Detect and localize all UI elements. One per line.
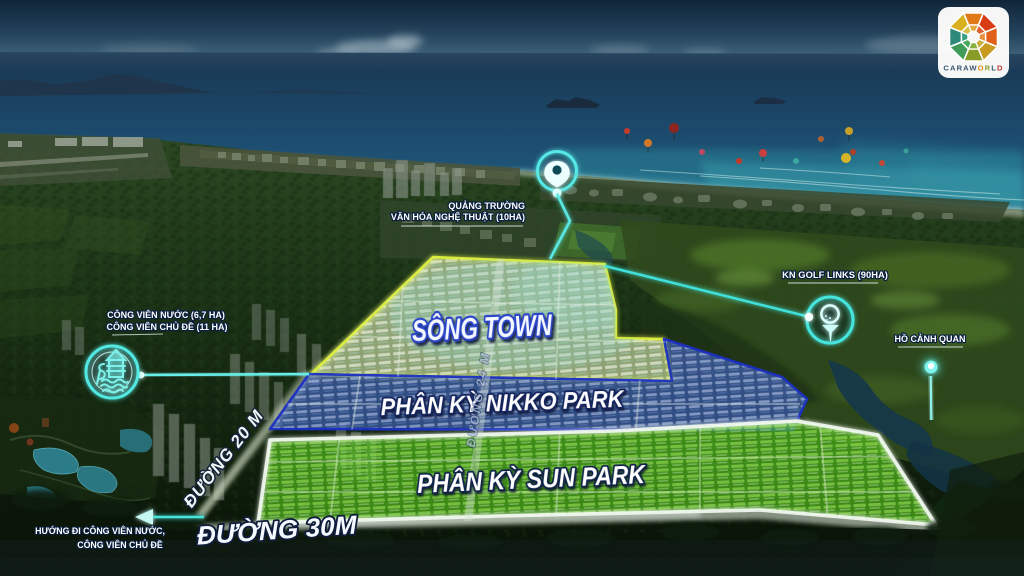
svg-text:CÔNG VIÊN CHỦ ĐỀ (11 HA): CÔNG VIÊN CHỦ ĐỀ (11 HA): [106, 321, 227, 332]
svg-text:CARAWORLD: CARAWORLD: [943, 64, 1003, 73]
svg-text:KN GOLF LINKS (90HA): KN GOLF LINKS (90HA): [782, 269, 888, 280]
svg-text:CÔNG VIÊN CHỦ ĐỀ: CÔNG VIÊN CHỦ ĐỀ: [77, 539, 163, 550]
svg-text:SÔNG TOWN: SÔNG TOWN: [411, 308, 553, 348]
svg-text:CÔNG VIÊN NƯỚC (6,7 HA): CÔNG VIÊN NƯỚC (6,7 HA): [107, 309, 225, 320]
svg-text:QUẢNG TRƯỜNG: QUẢNG TRƯỜNG: [448, 200, 525, 211]
svg-text:VĂN HÓA NGHỆ THUẬT (10HA): VĂN HÓA NGHỆ THUẬT (10HA): [391, 211, 525, 222]
svg-text:HỒ CẢNH QUAN: HỒ CẢNH QUAN: [895, 333, 966, 344]
svg-text:HƯỚNG ĐI CÔNG VIÊN NƯỚC,: HƯỚNG ĐI CÔNG VIÊN NƯỚC,: [35, 525, 165, 536]
